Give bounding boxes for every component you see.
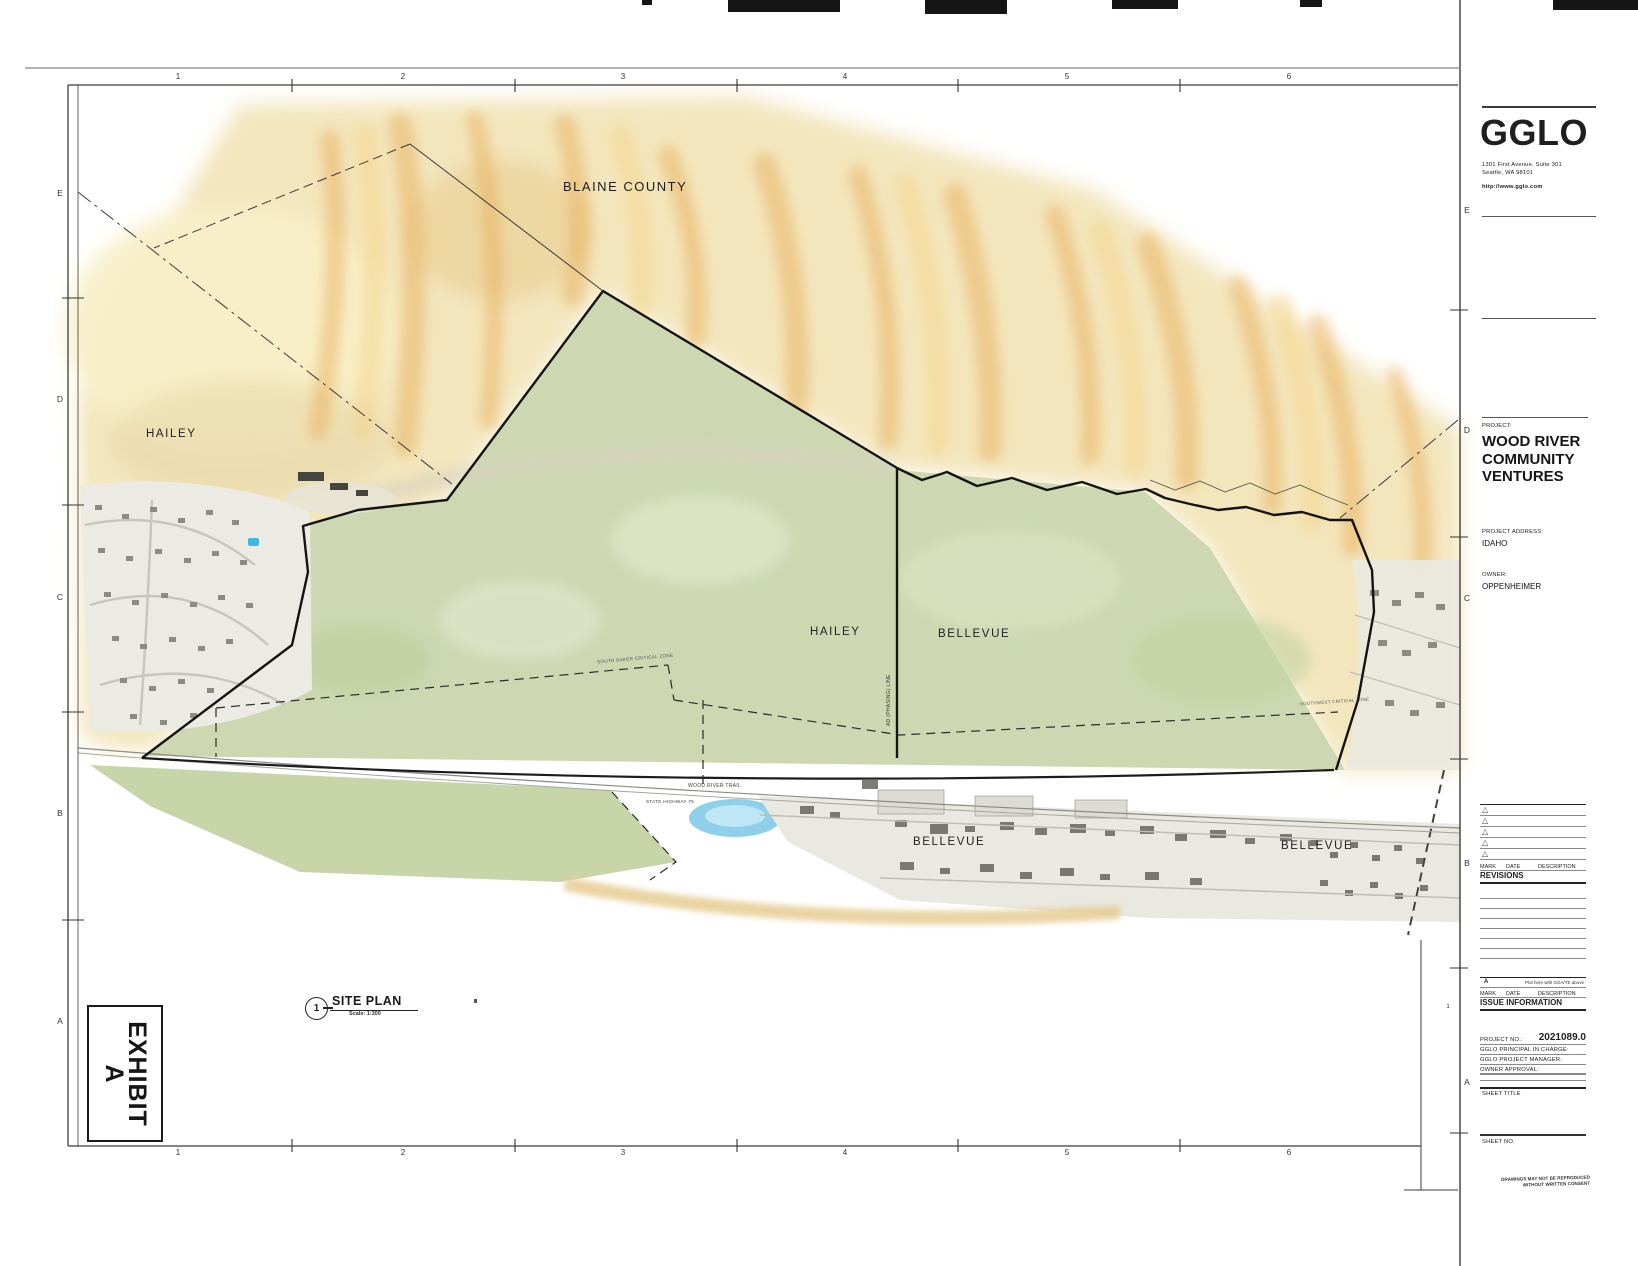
sheet-no-label: SHEET NO. xyxy=(1482,1139,1515,1145)
issue-header: MARK DATE DESCRIPTION xyxy=(1480,988,1586,998)
project-fields: PROJECT NO.: 2021089.0 GGLO PRINCIPAL IN… xyxy=(1480,1034,1586,1075)
grid-ref: 1 xyxy=(172,1148,184,1157)
grid-ref: D xyxy=(54,394,66,404)
grid-ref: D xyxy=(1461,425,1473,435)
issue-col-date: DATE xyxy=(1506,991,1538,997)
exhibit-text: EXHIBIT A xyxy=(102,1021,148,1127)
grid-ref: 2 xyxy=(397,72,409,81)
ink-speck xyxy=(474,999,477,1003)
revision-delta-icon: △ xyxy=(1482,838,1488,847)
scan-artifacts xyxy=(642,0,1638,14)
exhibit-line1: EXHIBIT xyxy=(125,1021,148,1127)
issue-table: A Plot here with GGA/TE above MARK DATE … xyxy=(1480,977,1586,1011)
map-label-bellevue-center: BELLEVUE xyxy=(938,628,1010,640)
titleblock-rule xyxy=(1482,417,1588,418)
issue-col-mark: MARK xyxy=(1480,991,1506,997)
map-label-bellevue-east: BELLEVUE xyxy=(1281,840,1353,852)
map-label-wood-river-trail: WOOD RIVER TRAIL xyxy=(688,783,741,789)
map-label-blaine-county: BLAINE COUNTY xyxy=(563,179,687,194)
grid-ref: 5 xyxy=(1061,1148,1073,1157)
grid-ref: 2 xyxy=(397,1148,409,1157)
revisions-col-description: DESCRIPTION xyxy=(1538,864,1576,870)
project-address-value: IDAHO xyxy=(1482,539,1507,548)
grid-ref: C xyxy=(1461,593,1473,603)
grid-ref: A xyxy=(54,1016,66,1026)
map-label-hailey-center: HAILEY xyxy=(810,626,861,638)
sheet-title-label: SHEET TITLE xyxy=(1482,1091,1521,1097)
titleblock-rule xyxy=(1482,106,1596,108)
project-no-row: PROJECT NO.: 2021089.0 xyxy=(1480,1034,1586,1045)
south-fields xyxy=(90,765,676,882)
grid-ref: 1 xyxy=(1442,1004,1454,1010)
grid-ref: 5 xyxy=(1061,72,1073,81)
revision-row: △ xyxy=(1480,816,1586,827)
revisions-header: MARK DATE DESCRIPTION xyxy=(1480,860,1586,871)
callout-number: 1 xyxy=(314,1003,320,1014)
principal-row: GGLO PRINCIPAL IN CHARGE: xyxy=(1480,1045,1586,1055)
project-label: PROJECT: xyxy=(1482,423,1512,429)
map-label-state-highway: STATE HIGHWAY 75 xyxy=(646,799,694,804)
swimming-pool xyxy=(248,538,259,546)
grid-ref: E xyxy=(1461,205,1473,215)
revision-row: △ xyxy=(1480,827,1586,838)
project-name-line2: COMMUNITY VENTURES xyxy=(1482,451,1638,485)
revision-delta-icon: △ xyxy=(1482,805,1488,814)
grid-ref: 3 xyxy=(617,72,629,81)
project-name-line1: WOOD RIVER xyxy=(1482,433,1580,450)
grid-ref: 4 xyxy=(839,72,851,81)
titleblock-rule xyxy=(1480,1087,1586,1089)
gglo-logo: GGLO xyxy=(1480,112,1588,154)
revision-row: △ xyxy=(1480,805,1586,816)
grid-ref: 3 xyxy=(617,1148,629,1157)
firm-website: http://www.gglo.com xyxy=(1482,184,1543,190)
titleblock-rule xyxy=(1482,216,1596,217)
grid-ref: E xyxy=(54,188,66,198)
grid-ref: B xyxy=(54,808,66,818)
east-town-area xyxy=(1346,560,1460,770)
project-no-value: 2021089.0 xyxy=(1539,1032,1586,1043)
revisions-col-mark: MARK xyxy=(1480,864,1506,870)
revisions-table: △ △ △ △ △ MARK DATE DESCRIPTION REVISION… xyxy=(1480,804,1586,884)
grid-ref: A xyxy=(1461,1077,1473,1087)
titleblock-rule xyxy=(1480,1134,1586,1136)
titleblock-rule xyxy=(1480,1073,1586,1074)
grid-ref: 1 xyxy=(172,72,184,81)
firm-address-line2: Seattle, WA 98101 xyxy=(1482,170,1533,176)
owner-value: OPPENHEIMER xyxy=(1482,582,1541,591)
titleblock-rule xyxy=(1482,318,1596,319)
revision-delta-icon: △ xyxy=(1482,827,1488,836)
revision-row: △ xyxy=(1480,838,1586,849)
manager-label: GGLO PROJECT MANAGER: xyxy=(1480,1057,1562,1063)
pond-highlight xyxy=(705,805,765,827)
principal-label: GGLO PRINCIPAL IN CHARGE: xyxy=(1480,1047,1569,1053)
grid-ref: 6 xyxy=(1283,72,1295,81)
firm-address-line1: 1301 First Avenue, Suite 301 xyxy=(1482,162,1562,168)
callout-scale: Scale: 1:300 xyxy=(349,1011,381,1017)
issue-row-note: Plot here with GGA/TE above xyxy=(1525,980,1584,985)
callout-title: SITE PLAN xyxy=(330,994,418,1011)
map-label-hailey-nw: HAILEY xyxy=(146,428,197,440)
phasing-line-label: AD (PHASING) LINE xyxy=(886,674,892,726)
issue-blank-lines xyxy=(1480,889,1586,959)
issue-row-mark: A xyxy=(1484,979,1488,985)
grid-ref: 6 xyxy=(1283,1148,1295,1157)
issue-title: ISSUE INFORMATION xyxy=(1480,998,1586,1011)
industrial-buildings xyxy=(878,790,1127,818)
map-label-bellevue-south: BELLEVUE xyxy=(913,836,985,848)
titleblock-rule xyxy=(1480,1080,1586,1081)
grid-ref: 4 xyxy=(839,1148,851,1157)
exhibit-stamp: EXHIBIT A xyxy=(87,1005,163,1142)
revision-delta-icon: △ xyxy=(1482,849,1488,858)
project-address-label: PROJECT ADDRESS: xyxy=(1482,529,1543,535)
callout-number-bubble: 1 xyxy=(305,997,328,1020)
revisions-col-date: DATE xyxy=(1506,864,1538,870)
manager-row: GGLO PROJECT MANAGER: xyxy=(1480,1055,1586,1065)
owner-label: OWNER: xyxy=(1482,572,1507,578)
grid-ref: C xyxy=(54,592,66,602)
issue-row: A Plot here with GGA/TE above xyxy=(1480,978,1586,988)
revisions-title: REVISIONS xyxy=(1480,871,1586,884)
project-no-label: PROJECT NO.: xyxy=(1480,1037,1523,1043)
revision-delta-icon: △ xyxy=(1482,816,1488,825)
grid-ref: B xyxy=(1461,858,1473,868)
issue-col-description: DESCRIPTION xyxy=(1538,991,1576,997)
exhibit-line2: A xyxy=(102,1021,125,1127)
revision-row: △ xyxy=(1480,849,1586,860)
drawing-sheet: 1 2 3 4 5 6 1 2 3 4 5 6 E D C B A E D C … xyxy=(0,0,1638,1266)
